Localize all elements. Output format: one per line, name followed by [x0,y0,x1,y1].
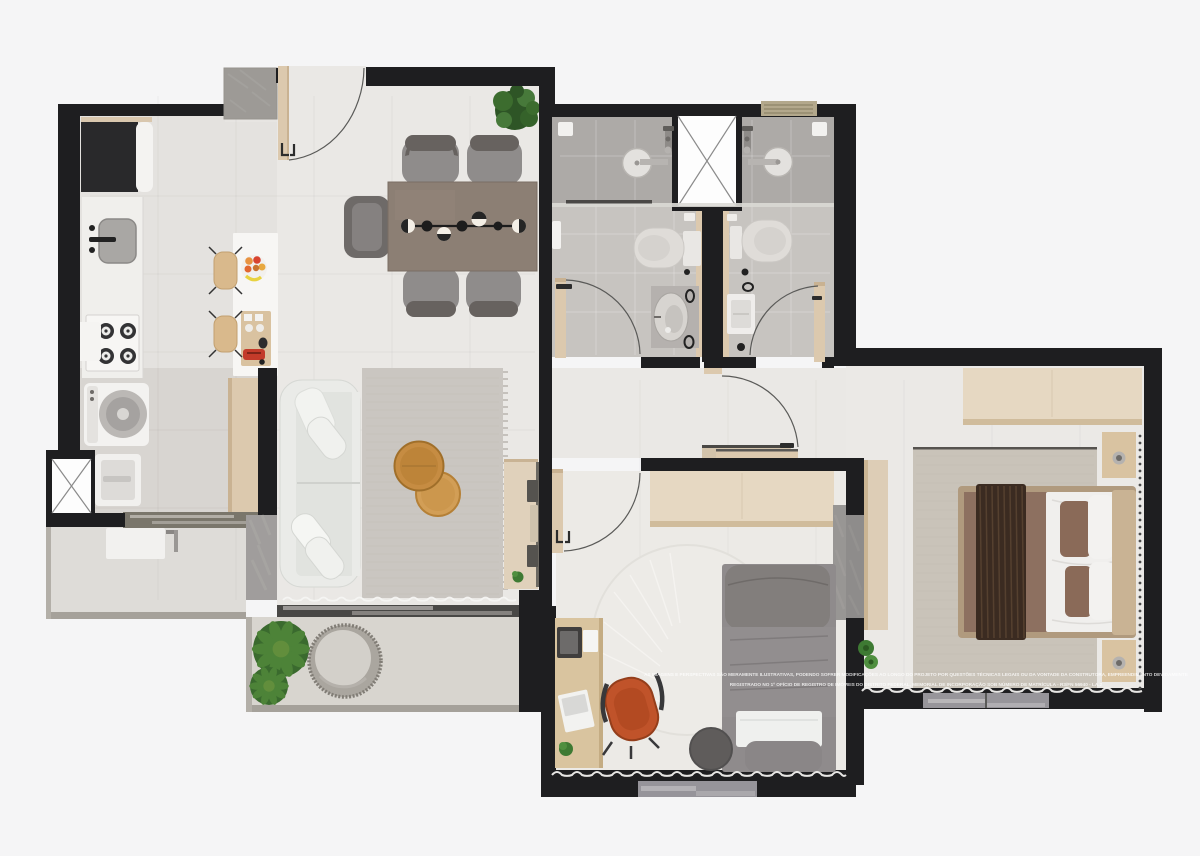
svg-text:AS IMAGENS E PERSPECTIVAS SÃO: AS IMAGENS E PERSPECTIVAS SÃO MERAMENTE … [644,670,1188,677]
svg-text:REGISTRADO NO 1º OFÍCIO DE REG: REGISTRADO NO 1º OFÍCIO DE REGISTRO DE I… [730,680,1103,687]
